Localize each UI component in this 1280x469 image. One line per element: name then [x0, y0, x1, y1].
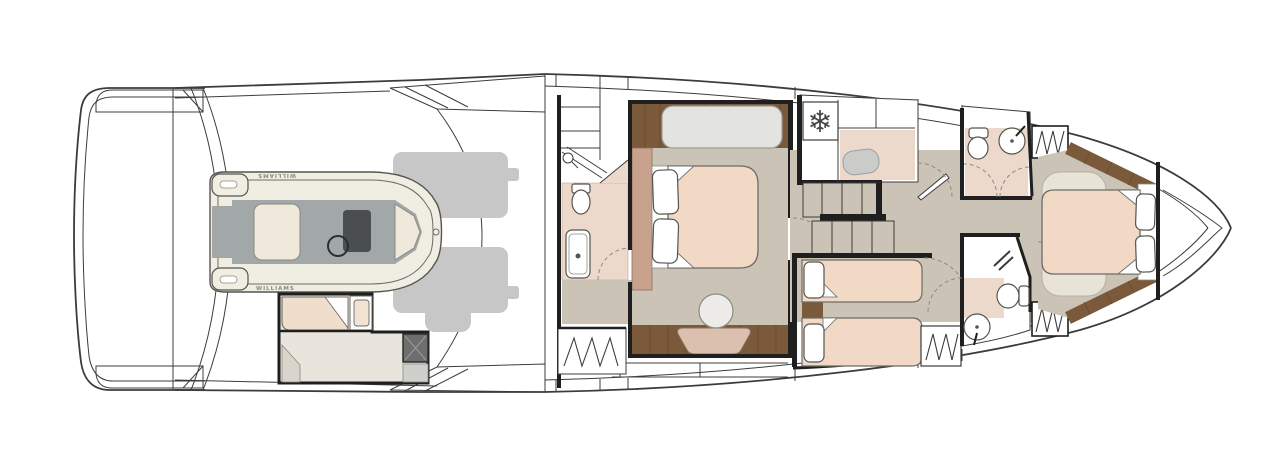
- master-pillow: [652, 170, 679, 215]
- platform-step-bottom: [96, 366, 203, 388]
- vip-pillow: [1135, 194, 1155, 231]
- crew-sink: [354, 300, 369, 326]
- master-sofa: [662, 106, 782, 148]
- master-cabin: [628, 100, 793, 358]
- tender-brand-top: WILLIAMS: [257, 172, 296, 178]
- tender-aft-seat: [254, 204, 300, 260]
- tender: WILLIAMS WILLIAMS: [210, 172, 442, 292]
- master-headboard: [632, 148, 652, 290]
- twin-wood-floor: [802, 302, 823, 318]
- master-toilet-icon: [572, 190, 590, 214]
- master-pillow: [652, 219, 679, 264]
- master-bed: [668, 166, 758, 268]
- snowflake-icon: ❄: [807, 105, 832, 140]
- yacht-floorplan: WILLIAMS WILLIAMS: [0, 0, 1280, 469]
- floorplan-canvas: WILLIAMS WILLIAMS: [0, 0, 1280, 469]
- platform-step-top: [96, 90, 203, 112]
- day-head-toilet-icon: [968, 137, 988, 159]
- vip-bed: [1042, 190, 1140, 274]
- shower-head-icon: [563, 153, 573, 163]
- tender-brand-bottom: WILLIAMS: [256, 286, 295, 292]
- master-wardrobe: [558, 328, 626, 374]
- twin-toilet-icon: [997, 284, 1019, 308]
- vip-cabin: [1038, 148, 1160, 319]
- vip-pillow: [1135, 236, 1155, 273]
- ensuite-lobby-floor: [562, 280, 632, 324]
- swim-platform: [74, 88, 205, 390]
- master-ensuite: [557, 82, 632, 388]
- twin-pillow-2: [804, 324, 824, 362]
- master-bench: [678, 328, 751, 354]
- master-stool: [699, 294, 733, 328]
- day-head: [960, 106, 1032, 200]
- twin-pillow-1: [804, 262, 824, 298]
- collision-bulkhead: [1156, 162, 1160, 300]
